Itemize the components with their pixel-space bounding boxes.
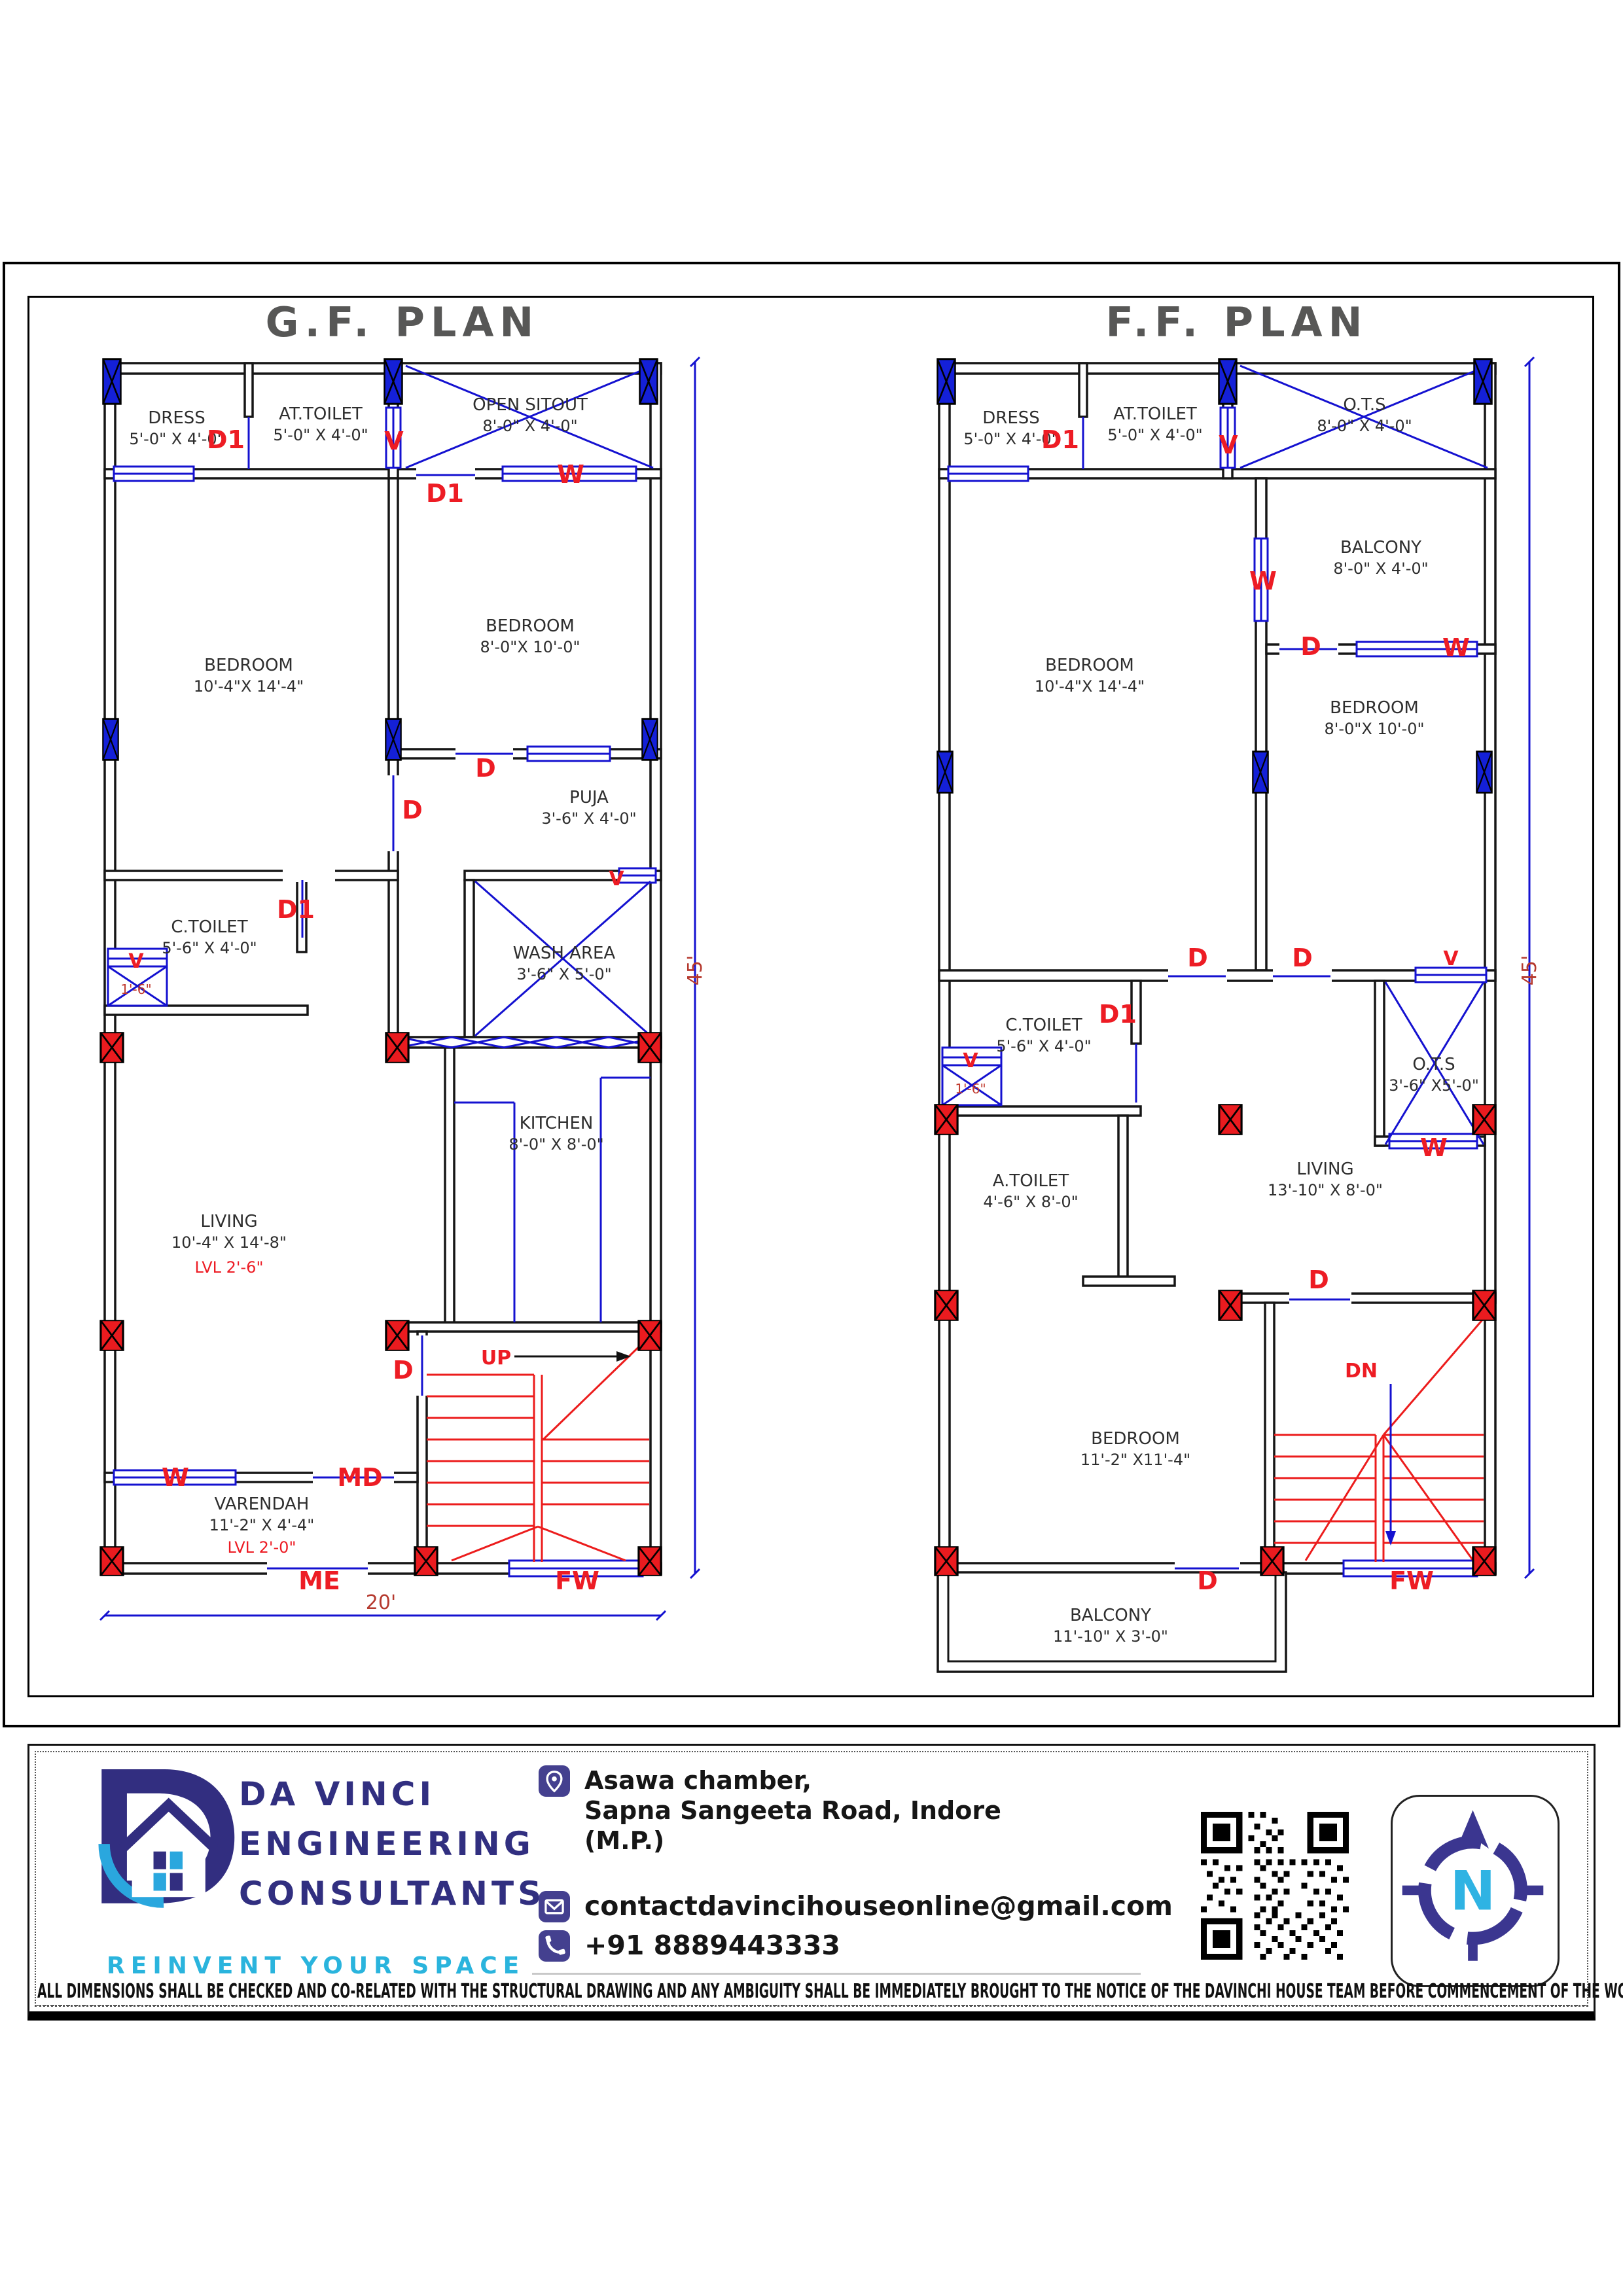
room-label: AT.TOILET — [1113, 404, 1197, 424]
door-tag: D1 — [1099, 1000, 1137, 1029]
room-label: AT.TOILET — [279, 404, 363, 424]
compass-north-letter: N — [1450, 1859, 1496, 1922]
room-dims: 8'-0"X 10'-0" — [1324, 720, 1424, 738]
location-icon — [539, 1765, 570, 1797]
room-dims: 3'-6" X 4'-0" — [541, 809, 636, 828]
vent-tag: V — [609, 868, 624, 891]
room-label: BEDROOM — [486, 616, 575, 636]
room-label: DRESS — [982, 408, 1040, 428]
email-text: contactdavincihouseonline@gmail.com — [584, 1891, 1173, 1922]
gf-dimension-lines — [100, 357, 700, 1620]
room-dims: 10'-4"X 14'-4" — [1035, 677, 1145, 696]
room-label: BEDROOM — [204, 656, 293, 675]
room-label: BEDROOM — [1045, 656, 1134, 675]
window-tag: W — [1442, 633, 1470, 662]
basin-dim: 1'-6" — [120, 981, 151, 997]
room-label: O.T.S — [1412, 1055, 1455, 1074]
north-compass-icon: N — [1391, 1795, 1560, 1987]
door-tag: D — [1187, 944, 1208, 972]
qr-code — [1201, 1808, 1349, 1964]
door-tag: D — [1292, 944, 1313, 972]
room-dims: 13'-10" X 8'-0" — [1268, 1181, 1383, 1199]
room-dims: 8'-0" X 4'-0" — [1333, 559, 1428, 578]
door-tag: D — [402, 796, 423, 824]
room-label: OPEN SITOUT — [473, 395, 588, 415]
room-label: A.TOILET — [993, 1171, 1069, 1191]
address-line1: Asawa chamber, — [584, 1765, 1001, 1795]
company-name-line3: CONSULTANTS — [239, 1869, 545, 1918]
door-tag: D1 — [277, 895, 315, 924]
disclaimer-dotted-line — [35, 2005, 1588, 2007]
room-dims: 11'-2" X 4'-4" — [209, 1516, 315, 1534]
address-line3: (M.P.) — [584, 1826, 1001, 1856]
room-dims: 8'-0"X 10'-0" — [480, 638, 580, 656]
ff-windows-doors — [948, 408, 1486, 1576]
gf-plan-drawing: DRESS 5'-0" X 4'-0" AT.TOILET 5'-0" X 4'… — [98, 357, 707, 1639]
stair-direction: UP — [481, 1347, 511, 1369]
ff-staircase — [1274, 1318, 1484, 1562]
phone-icon — [539, 1930, 570, 1962]
room-label: VARENDAH — [215, 1494, 310, 1514]
ff-tag-labels: D1 V W D W D D V D1 V 1'-6" W D DN D FW — [955, 425, 1470, 1595]
room-label: C.TOILET — [171, 917, 247, 937]
window-tag: W — [1249, 567, 1277, 595]
room-label: O.T.S — [1343, 395, 1385, 415]
room-label: LIVING — [1296, 1159, 1353, 1179]
phone-text: +91 8889443333 — [584, 1930, 840, 1962]
room-label: BEDROOM — [1330, 698, 1419, 718]
room-label: DRESS — [148, 408, 205, 428]
vent-tag: V — [1219, 431, 1238, 459]
door-tag: D — [1308, 1265, 1329, 1294]
window-tag: FW — [1389, 1566, 1434, 1595]
door-tag: D1 — [426, 479, 464, 508]
email-row: contactdavincihouseonline@gmail.com — [539, 1891, 1173, 1922]
gf-windows-doors — [114, 408, 656, 1576]
door-tag: MD — [337, 1463, 382, 1492]
room-dims: 11'-10" X 3'-0" — [1053, 1627, 1168, 1646]
window-tag: W — [1420, 1133, 1448, 1162]
gf-room-labels: DRESS 5'-0" X 4'-0" AT.TOILET 5'-0" X 4'… — [129, 395, 636, 1557]
window-tag: W — [557, 460, 584, 489]
door-tag: D1 — [1041, 425, 1079, 454]
divider-rule — [532, 1973, 1141, 1975]
drawing-sheet: G.F. PLAN F.F. PLAN — [0, 0, 1623, 2296]
stair-direction: DN — [1345, 1360, 1378, 1383]
room-dims: 5'-6" X 4'-0" — [996, 1037, 1091, 1055]
room-dims: 10'-4"X 14'-4" — [194, 677, 304, 696]
vent-tag: V — [1443, 947, 1459, 970]
disclaimer-text: ALL DIMENSIONS SHALL BE CHECKED AND CO-R… — [37, 1980, 999, 2003]
company-name-line1: DA VINCI — [239, 1769, 545, 1819]
room-label: KITCHEN — [520, 1114, 594, 1133]
room-dims: 3'-6" X5'-0" — [1389, 1076, 1479, 1095]
company-name-line2: ENGINEERING — [239, 1819, 545, 1869]
room-label: BALCONY — [1070, 1606, 1151, 1625]
dim-text: 45' — [684, 955, 707, 985]
room-label: BEDROOM — [1091, 1429, 1180, 1449]
ff-cross-marks — [1240, 366, 1488, 1144]
gf-staircase — [427, 1337, 649, 1562]
window-tag: W — [162, 1463, 189, 1492]
dim-text: 45' — [1518, 955, 1541, 985]
room-label: WASH AREA — [513, 944, 616, 963]
basin-dim: 1'-6" — [955, 1081, 986, 1097]
address-row: Asawa chamber, Sapna Sangeeta Road, Indo… — [539, 1765, 1001, 1856]
ff-dimension-text: 45' — [1518, 955, 1541, 985]
dim-text: 20' — [366, 1591, 396, 1614]
door-tag: D — [393, 1356, 414, 1385]
room-label: BALCONY — [1340, 538, 1421, 557]
company-tagline: REINVENT YOUR SPACE — [107, 1952, 525, 1979]
room-dims: 8'-0" X 4'-0" — [482, 417, 577, 435]
room-dims: 8'-0" X 4'-0" — [1317, 417, 1412, 435]
address-line2: Sapna Sangeeta Road, Indore — [584, 1795, 1001, 1826]
gf-plan-title: G.F. PLAN — [98, 298, 707, 346]
company-name: DA VINCI ENGINEERING CONSULTANTS — [239, 1769, 545, 1918]
door-tag: ME — [298, 1566, 340, 1595]
room-dims: 5'-0" X 4'-0" — [1107, 426, 1202, 444]
room-dims: 10'-4" X 14'-8" — [171, 1233, 287, 1252]
vent-tag: V — [128, 950, 144, 973]
room-level: LVL 2'-6" — [195, 1258, 264, 1277]
ff-room-labels: DRESS 5'-0" X 4'-0" AT.TOILET 5'-0" X 4'… — [963, 395, 1479, 1646]
room-dims: 5'-6" X 4'-0" — [162, 939, 257, 957]
window-tag: FW — [555, 1566, 599, 1595]
door-tag: D — [475, 754, 496, 783]
door-tag: D — [1300, 632, 1321, 661]
phone-row: +91 8889443333 — [539, 1930, 840, 1962]
room-dims: 8'-0" X 8'-0" — [508, 1135, 603, 1154]
room-level: LVL 2'-0" — [228, 1538, 296, 1557]
address-text: Asawa chamber, Sapna Sangeeta Road, Indo… — [584, 1765, 1001, 1856]
room-label: LIVING — [200, 1212, 257, 1231]
vent-tag: V — [963, 1050, 978, 1072]
email-icon — [539, 1891, 570, 1922]
company-logo — [69, 1763, 259, 1928]
door-tag: D1 — [207, 425, 245, 454]
ff-plan-title: F.F. PLAN — [933, 298, 1541, 346]
room-dims: 3'-6" X 5'-0" — [516, 965, 611, 983]
room-label: C.TOILET — [1005, 1016, 1082, 1035]
room-dims: 5'-0" X 4'-0" — [273, 426, 368, 444]
room-label: PUJA — [569, 788, 609, 807]
room-dims: 4'-6" X 8'-0" — [983, 1193, 1078, 1211]
room-dims: 11'-2" X11'-4" — [1080, 1451, 1190, 1469]
door-tag: D — [1197, 1566, 1218, 1595]
title-block: REINVENT YOUR SPACE DA VINCI ENGINEERING… — [27, 1744, 1596, 2021]
ff-plan-drawing: DRESS 5'-0" X 4'-0" AT.TOILET 5'-0" X 4'… — [933, 357, 1541, 1691]
vent-tag: V — [384, 427, 404, 455]
